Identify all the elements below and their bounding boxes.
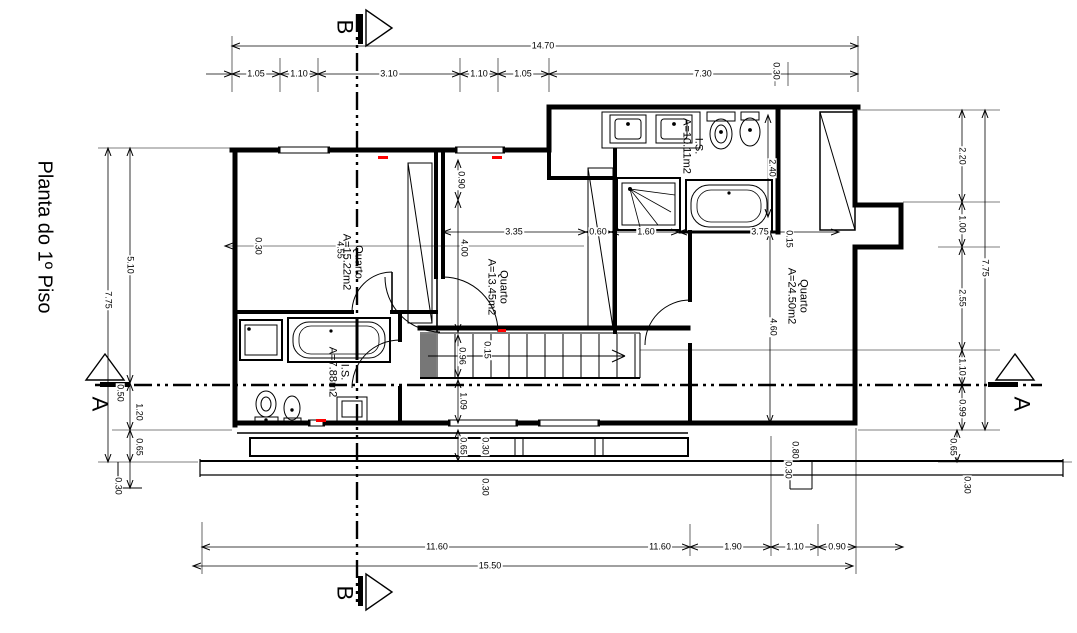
bathtub-icon <box>686 180 772 232</box>
section-arrow-icon <box>86 354 124 380</box>
sink-icon <box>337 397 367 421</box>
drawing-title: Planta do 1º Piso <box>33 161 56 314</box>
bidet-icon <box>740 112 760 146</box>
bidet-icon <box>284 396 301 424</box>
balcony <box>118 433 1063 489</box>
bathtub-icon <box>288 318 390 362</box>
sink-icon <box>656 115 692 143</box>
extension-lines <box>98 36 1072 574</box>
staircase <box>420 333 640 378</box>
section-arrow-icon <box>996 354 1034 380</box>
partition-walls <box>235 150 778 423</box>
upper-bathroom-fixtures <box>602 112 772 232</box>
section-arrow-icon <box>366 10 392 46</box>
floorplan-drawing <box>0 0 1077 633</box>
toilet-icon <box>707 112 735 149</box>
section-arrow-icon <box>366 574 392 610</box>
wardrobes <box>408 112 855 328</box>
floorplan-sheet: Planta do 1º Piso 14.701.051.103.101.101… <box>0 0 1077 633</box>
lower-bathroom-fixtures <box>240 318 390 424</box>
toilet-icon <box>255 391 278 424</box>
section-arrow-icons <box>86 10 1034 610</box>
shower-icon <box>617 178 680 230</box>
shower-icon <box>240 320 282 360</box>
sink-icon <box>610 115 646 143</box>
